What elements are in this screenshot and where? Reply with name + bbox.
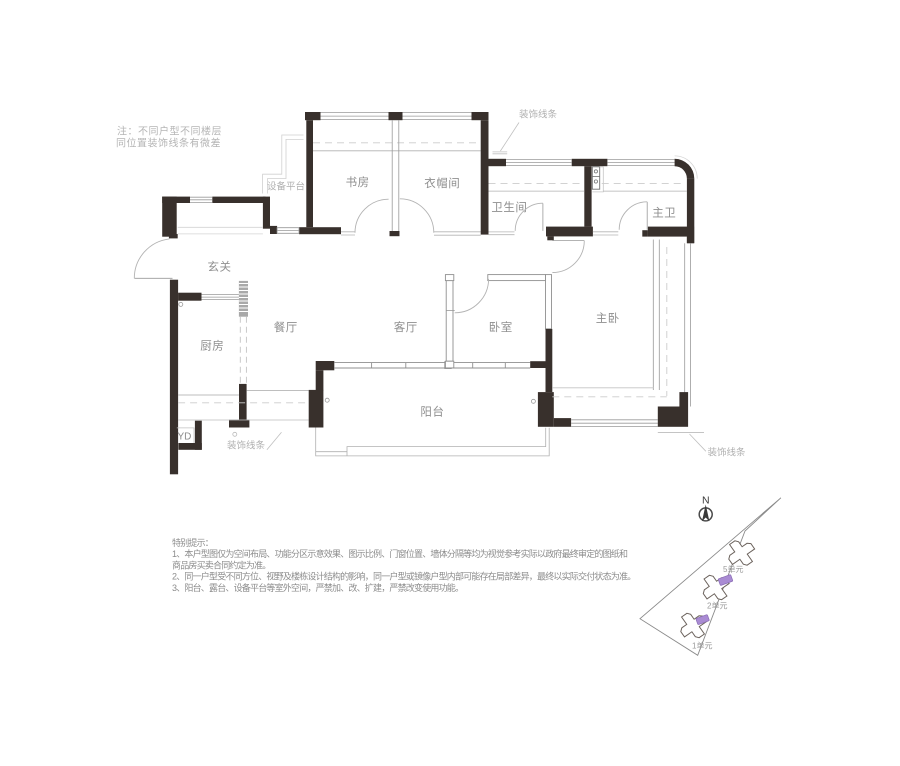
svg-text:阳台: 阳台 xyxy=(420,405,444,419)
svg-text:特别提示：: 特别提示： xyxy=(172,537,213,548)
svg-text:餐厅: 餐厅 xyxy=(274,320,298,334)
svg-text:主卧: 主卧 xyxy=(596,312,620,325)
svg-text:装饰线条: 装饰线条 xyxy=(227,440,266,452)
svg-text:主卫: 主卫 xyxy=(652,207,676,220)
svg-text:玄关: 玄关 xyxy=(208,260,232,274)
svg-text:3、阳台、露台、设备平台等室外空间，严禁加、改、扩建，严禁改: 3、阳台、露台、设备平台等室外空间，严禁加、改、扩建，严禁改变使用功能。 xyxy=(172,582,463,593)
svg-text:2、同一户型受不同方位、视野及楼栋设计结构的影响，同一户型或: 2、同一户型受不同方位、视野及楼栋设计结构的影响，同一户型或镜像户型内部可能存在… xyxy=(172,571,635,582)
svg-text:1、本户型图仅为空间布局、功能分区示意效果、图示比例、门窗位: 1、本户型图仅为空间布局、功能分区示意效果、图示比例、门窗位置、墙体分隔等均为视… xyxy=(172,548,628,559)
svg-text:设备平台: 设备平台 xyxy=(267,181,305,193)
svg-text:卧室: 卧室 xyxy=(489,320,513,334)
svg-text:书房: 书房 xyxy=(346,176,370,189)
svg-text:装饰线条: 装饰线条 xyxy=(519,109,558,121)
svg-text:注：不同户型不同楼层: 注：不同户型不同楼层 xyxy=(117,125,222,138)
svg-text:卫生间: 卫生间 xyxy=(491,200,527,214)
svg-text:衣帽间: 衣帽间 xyxy=(424,176,460,190)
svg-text:1单元: 1单元 xyxy=(692,641,712,651)
svg-text:5单元: 5单元 xyxy=(723,564,743,574)
svg-text:客厅: 客厅 xyxy=(394,320,418,334)
svg-text:同位置装饰线条有微差: 同位置装饰线条有微差 xyxy=(116,137,221,150)
svg-text:YD: YD xyxy=(178,432,192,443)
svg-text:厨房: 厨房 xyxy=(200,340,224,353)
svg-text:商品房买卖合同约定为准。: 商品房买卖合同约定为准。 xyxy=(172,560,270,571)
svg-text:2单元: 2单元 xyxy=(707,601,727,611)
svg-text:N: N xyxy=(702,495,710,507)
svg-text:装饰线条: 装饰线条 xyxy=(708,447,747,459)
